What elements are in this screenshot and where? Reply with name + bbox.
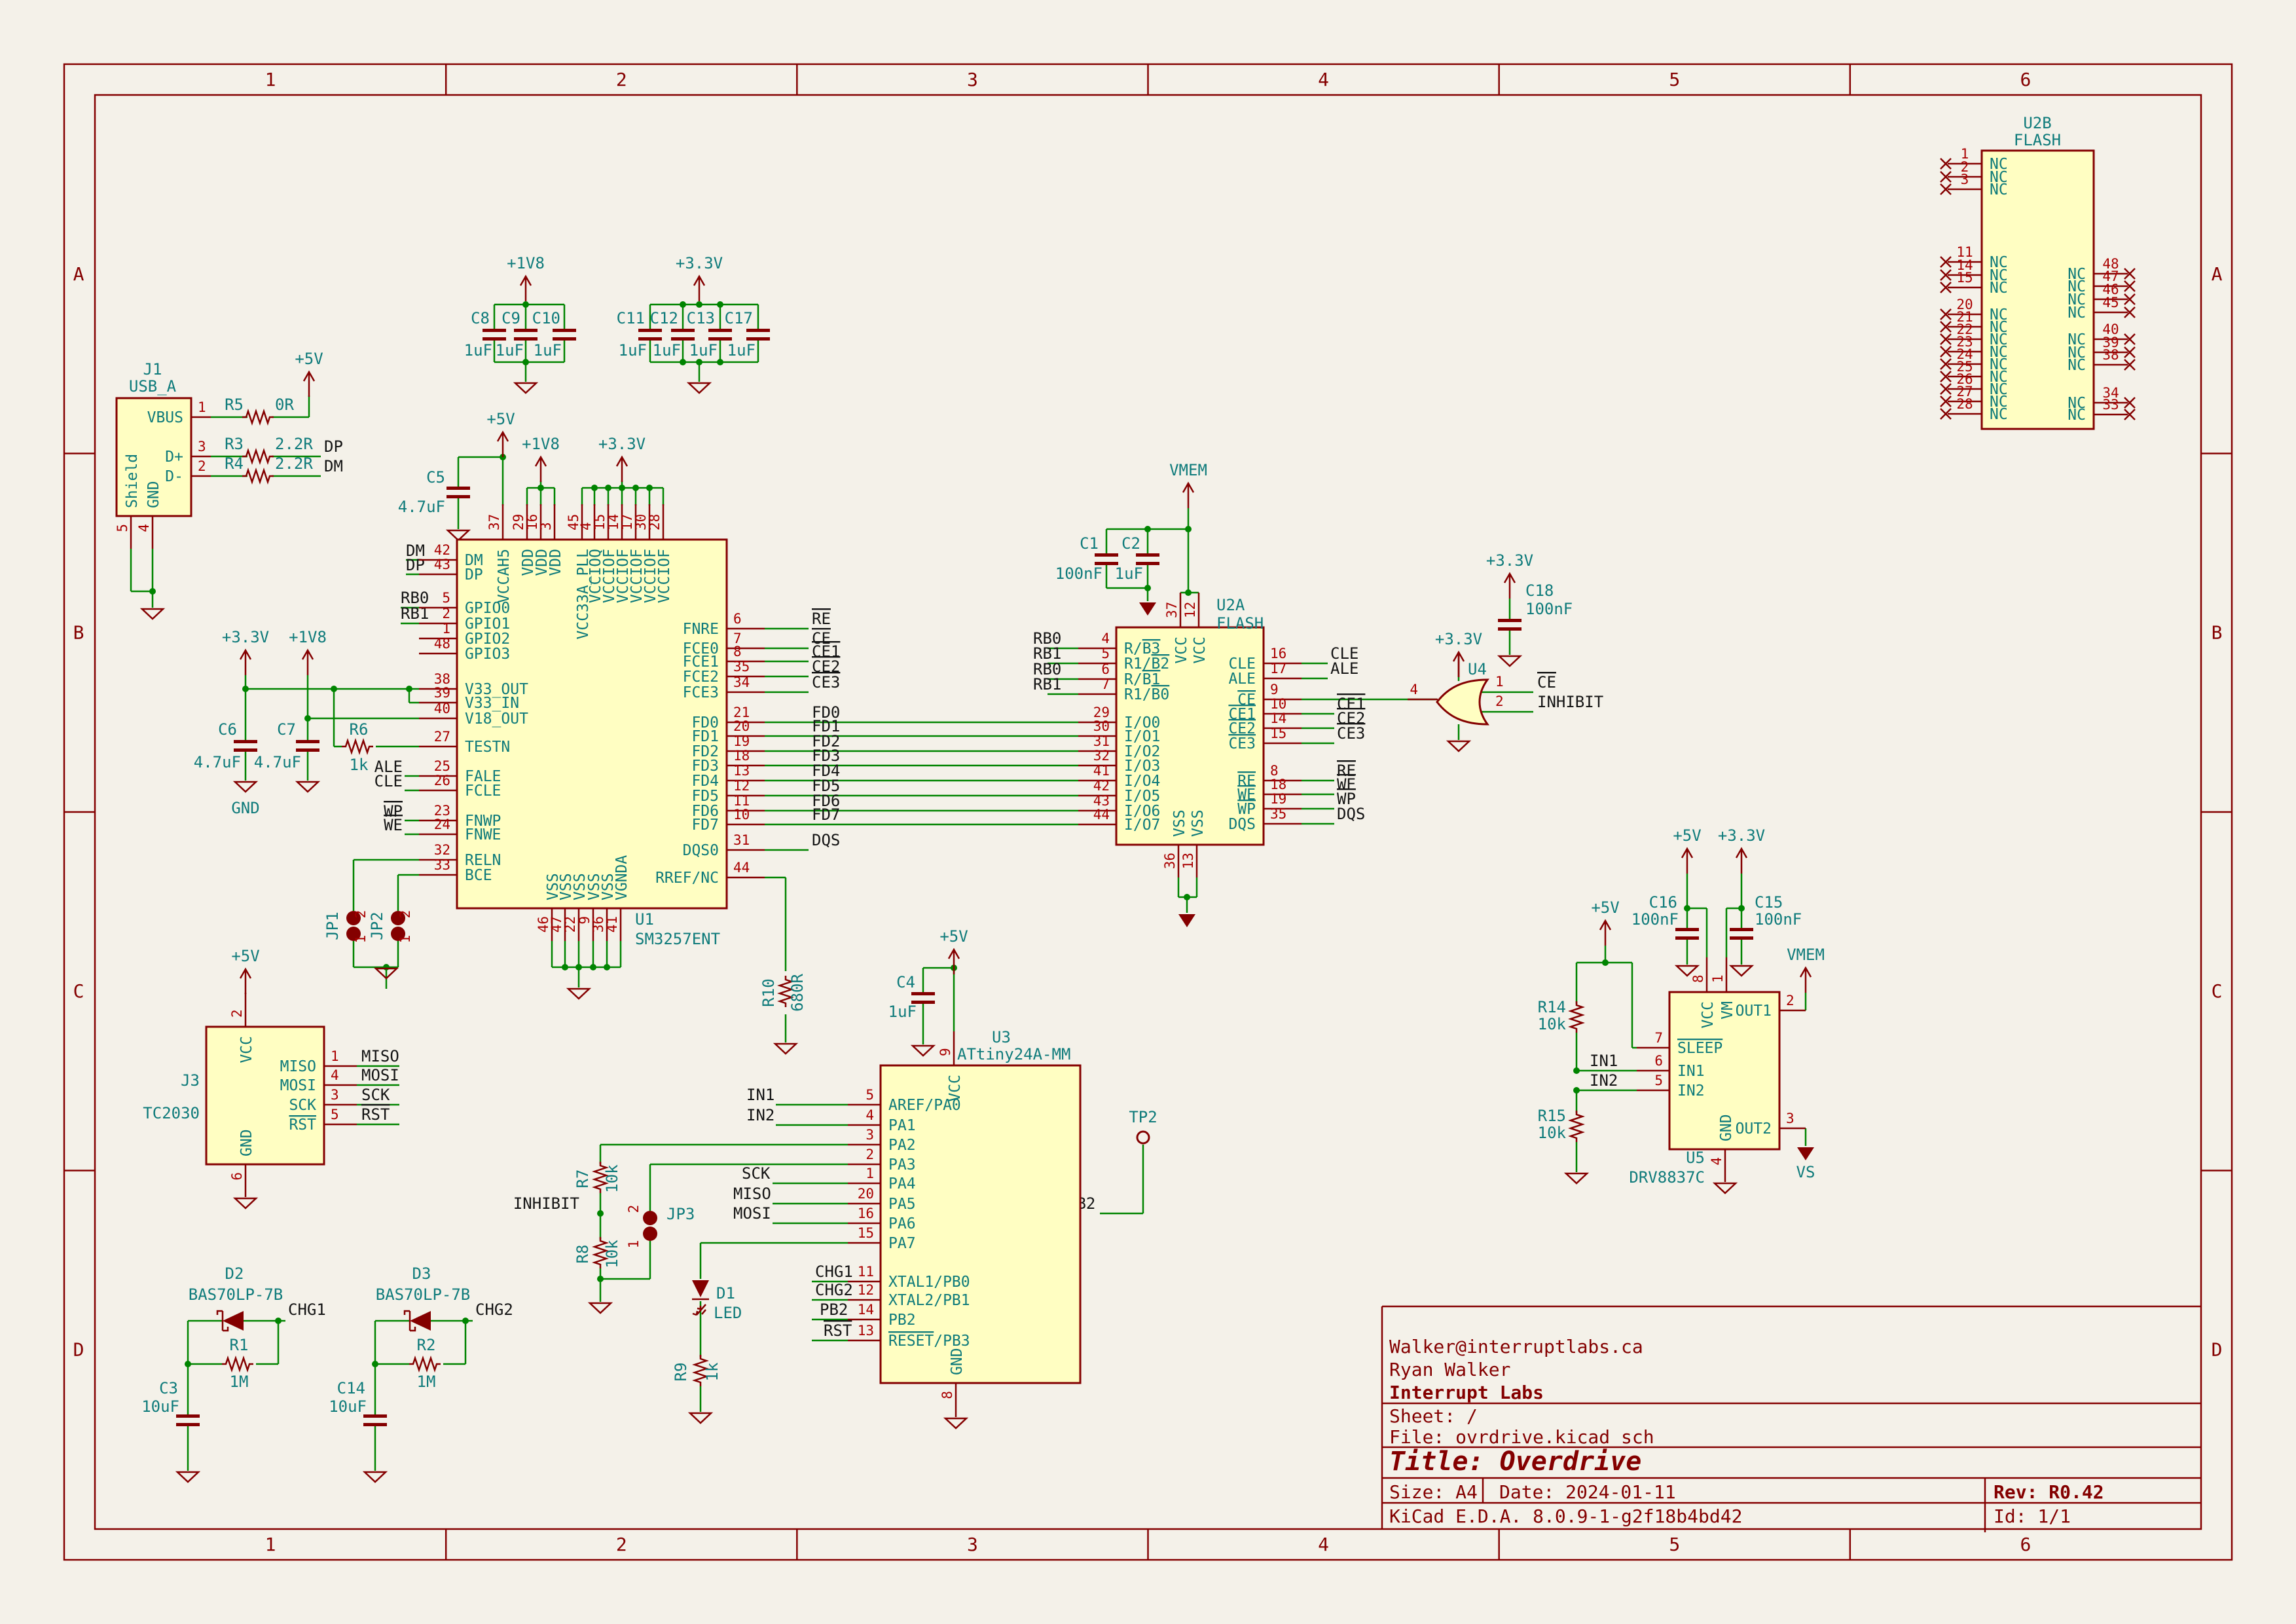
power-label-VMEM: VMEM — [1787, 946, 1825, 964]
component-ref: C8 — [471, 309, 490, 327]
net-label-FD7: FD7 — [812, 805, 840, 824]
component-ref: U1 — [635, 910, 654, 929]
component-value: 2.2R — [275, 435, 313, 453]
solder-jumper-symbol[interactable] — [643, 1211, 657, 1225]
pin-name: VDD — [547, 549, 564, 576]
pin-number: 28 — [1956, 396, 1973, 412]
pin-name: DP — [465, 566, 483, 583]
net-label-IN2: IN2 — [1590, 1071, 1618, 1090]
component-value: 1uF — [464, 341, 492, 360]
component-value: BAS70LP-7B — [376, 1285, 471, 1304]
pin-number: 6 — [1654, 1053, 1663, 1069]
pin-number: 38 — [2102, 347, 2119, 363]
pin-number: 31 — [733, 832, 750, 848]
pin-name: VM — [1719, 1001, 1736, 1020]
component-ref: R6 — [350, 720, 369, 739]
border-col-label: 1 — [265, 1534, 276, 1555]
pin-number: 27 — [434, 729, 450, 745]
pin-number: 31 — [1093, 733, 1110, 749]
pin-number: 10 — [1270, 696, 1286, 712]
power-label-+1V8: +1V8 — [522, 435, 560, 453]
net-label-CHG2: CHG2 — [815, 1281, 853, 1299]
pin-name: GND — [238, 1129, 255, 1156]
pin-number: 17 — [1270, 661, 1286, 676]
pin-name: PB2 — [888, 1312, 916, 1329]
pin-name: OUT1 — [1736, 1003, 1772, 1020]
pin-name: DQS0 — [683, 842, 719, 859]
pin-name: IN2 — [1677, 1082, 1705, 1099]
pin-name: VCC — [1192, 637, 1209, 664]
border-row-label: D — [2212, 1338, 2223, 1360]
pin-number: 3 — [1786, 1111, 1795, 1126]
pin-number: 32 — [1093, 748, 1110, 764]
pin-name: SCK — [289, 1097, 316, 1114]
net-label-SCK: SCK — [742, 1164, 771, 1183]
pin-number: 3 — [1961, 172, 1969, 187]
component-value: 10uF — [141, 1397, 179, 1416]
pin-number: 20 — [858, 1186, 874, 1202]
component-value: 4.7uF — [398, 498, 445, 516]
component-ref: JP3 — [666, 1205, 695, 1223]
kicad-schematic-sheet: 112233445566AABBCCDD Walker@interruptlab… — [0, 0, 2296, 1624]
pin-number: 3 — [866, 1127, 874, 1143]
led-symbol — [692, 1280, 709, 1297]
pin-number: 8 — [733, 644, 742, 659]
pin-number: 33 — [434, 857, 450, 873]
pin-number: 37 — [1164, 602, 1180, 618]
component-value: 1uF — [888, 1003, 917, 1021]
power-label-+5V: +5V — [486, 410, 515, 428]
net-label-INHIBIT: INHIBIT — [1537, 693, 1603, 711]
net-label-CE3: CE3 — [1337, 724, 1365, 743]
net-label-CHG2: CHG2 — [475, 1301, 513, 1319]
pin-number: 42 — [1093, 778, 1110, 794]
component-U5[interactable]: U5DRV8837C7SLEEP6IN15IN22OUT13OUT28VCC1V… — [1629, 957, 1806, 1187]
net-label-MISO: MISO — [361, 1047, 399, 1065]
power-arrow-icon — [240, 969, 251, 994]
component-ref: C13 — [687, 309, 715, 327]
component-ref: C5 — [426, 468, 445, 487]
power-label-+3.3V: +3.3V — [222, 628, 269, 646]
power-label-+3.3V: +3.3V — [1718, 826, 1765, 845]
pin-number: 6 — [229, 1172, 245, 1181]
pin-number: 1 — [353, 935, 369, 944]
pin-number: 41 — [604, 916, 620, 932]
component-value: 10k — [603, 1240, 621, 1268]
power-arrow-icon — [536, 457, 546, 482]
pin-number: 4 — [1101, 631, 1110, 646]
power-arrow-icon — [302, 650, 313, 675]
component-ref: C1 — [1080, 534, 1099, 553]
schematic-canvas: 112233445566AABBCCDD Walker@interruptlab… — [0, 0, 2296, 1624]
component-value: 4.7uF — [254, 753, 301, 771]
power-label-+3.3V: +3.3V — [1435, 630, 1482, 648]
pin-number: 5 — [331, 1107, 339, 1122]
pin-number: 33 — [2102, 397, 2119, 413]
pin-name: PA5 — [888, 1196, 916, 1213]
component-value: 1k — [703, 1362, 721, 1381]
component-ref: J3 — [181, 1071, 200, 1090]
component-value: 680R — [788, 974, 807, 1012]
pin-name: VCC — [1173, 637, 1190, 664]
title-block-size: Size: A4 — [1389, 1481, 1478, 1503]
component-value: USB_A — [129, 377, 177, 396]
title-block-tool: KiCad E.D.A. 8.0.9-1-g2f18b4bd42 — [1389, 1505, 1742, 1527]
pin-number: 3 — [538, 522, 554, 530]
power-arrow-icon — [304, 372, 314, 397]
title-block-author: Ryan Walker — [1389, 1359, 1510, 1380]
pin-number: 12 — [1182, 602, 1198, 618]
border-col-label: 5 — [1669, 69, 1680, 90]
pin-name: TESTN — [465, 739, 510, 756]
pin-number: 41 — [1093, 763, 1110, 779]
component-value: 1uF — [727, 341, 756, 360]
pin-number: 14 — [858, 1302, 874, 1318]
power-arrow-icon — [949, 950, 959, 974]
net-label-WE: WE — [384, 816, 403, 834]
power-label-+5V: +5V — [295, 350, 323, 368]
component-ref: R14 — [1538, 998, 1566, 1016]
pin-number: 45 — [2102, 295, 2119, 310]
component-U3[interactable]: U3ATtiny24A-MM5AREF/PA04PA13PA22PA31PA42… — [848, 1028, 1080, 1417]
power-label-+1V8: +1V8 — [289, 628, 327, 646]
component-ref: D3 — [412, 1264, 431, 1283]
net-label-ALE: ALE — [1330, 659, 1358, 678]
pin-name: R1/B2 — [1124, 655, 1169, 673]
net-label-DM: DM — [324, 457, 343, 475]
title-block-rev: Rev: R0.42 — [1994, 1481, 2104, 1503]
resistor-symbol — [222, 1358, 253, 1370]
power-arrow-icon — [1800, 968, 1811, 993]
power-arrow-icon — [1682, 849, 1692, 874]
capacitor-symbol — [1136, 553, 1159, 557]
net-label-DP: DP — [406, 556, 425, 574]
pin-number: 3 — [331, 1087, 339, 1103]
component-value: 1uF — [689, 341, 718, 360]
component-value: 1uF — [496, 341, 524, 360]
pin-number: 1 — [626, 1240, 642, 1249]
net-label-RST: RST — [361, 1105, 390, 1124]
pin-number: 6 — [733, 611, 742, 627]
pin-number: 28 — [647, 514, 663, 530]
pin-name: MISO — [280, 1058, 316, 1075]
pin-number: 16 — [858, 1206, 874, 1221]
pin-name: VSS — [1190, 809, 1207, 837]
pin-name: GND — [145, 481, 162, 508]
component-value: 10k — [1538, 1124, 1567, 1142]
pin-name: Shield — [124, 454, 141, 508]
pin-name: FNWE — [465, 826, 501, 843]
component-ref: R15 — [1538, 1107, 1566, 1125]
component-ref: C9 — [501, 309, 520, 327]
pin-name: PA4 — [888, 1175, 916, 1192]
pin-name: PA3 — [888, 1156, 916, 1173]
pin-number: 13 — [1180, 853, 1196, 869]
pin-number: 4 — [136, 524, 152, 532]
pin-number: 37 — [486, 514, 502, 530]
border-col-label: 3 — [967, 1534, 978, 1555]
net-label-RST: RST — [824, 1321, 852, 1340]
net-label-CHG1: CHG1 — [815, 1263, 853, 1281]
pin-name: VGNDA — [613, 855, 630, 900]
pin-number: 4 — [1709, 1157, 1724, 1166]
capacitor-symbol — [363, 1414, 387, 1418]
pin-number: 36 — [1162, 853, 1178, 869]
resistor-symbol — [242, 411, 274, 423]
pin-number: 1 — [442, 621, 450, 637]
net-label-CLE: CLE — [374, 772, 403, 790]
component-value: 2.2R — [275, 454, 313, 473]
pin-number: 40 — [434, 701, 450, 716]
pin-number: 18 — [1270, 777, 1286, 792]
power-label-+5V: +5V — [231, 947, 259, 965]
border-row-label: B — [2212, 621, 2223, 643]
border-row-label: A — [2212, 263, 2223, 285]
pin-number: 13 — [858, 1323, 874, 1338]
title-block-file: File: ovrdrive.kicad_sch — [1389, 1426, 1654, 1449]
net-label-IN1: IN1 — [1590, 1052, 1618, 1070]
power-label-+5V: +5V — [1673, 826, 1701, 845]
border-col-label: 2 — [616, 1534, 627, 1555]
resistor-symbol — [242, 451, 274, 462]
power-arrow-icon — [1600, 921, 1611, 946]
component-ref: R4 — [225, 454, 244, 473]
pin-number: 2 — [1786, 993, 1795, 1008]
net-label-RE: RE — [812, 610, 831, 628]
or-gate-symbol[interactable] — [1437, 680, 1487, 724]
component-ref: JP2 — [368, 912, 386, 940]
title-block-title: Title: Overdrive — [1389, 1447, 1641, 1477]
component-value: 0R — [275, 396, 294, 414]
pin-name: PA6 — [888, 1215, 916, 1232]
pin-number: 43 — [434, 557, 450, 572]
pin-number: 9 — [1270, 682, 1279, 697]
component-ref: JP1 — [323, 912, 342, 940]
pin-number: 12 — [858, 1282, 874, 1298]
component-ref: R3 — [225, 435, 244, 453]
pin-number: 15 — [1270, 726, 1286, 741]
component-ref: C12 — [650, 309, 678, 327]
pin-name: VCCAH5 — [496, 549, 513, 603]
border-col-label: 3 — [967, 69, 978, 90]
component-J3[interactable]: J3TC20301MISO4MOSI3SCK5RST2VCC6GND — [143, 993, 357, 1197]
capacitor-symbol — [176, 1414, 200, 1418]
net-label-MOSI: MOSI — [361, 1066, 399, 1084]
pin-number: 11 — [858, 1264, 874, 1280]
power-label-+3.3V: +3.3V — [1486, 551, 1533, 570]
power-arrow-icon — [240, 650, 251, 675]
component-ref: R7 — [574, 1170, 592, 1189]
pin-name: IN1 — [1677, 1063, 1705, 1080]
resistor-symbol — [1571, 1111, 1582, 1142]
pin-number: 2 — [442, 606, 450, 621]
power-label-+3.3V: +3.3V — [676, 254, 723, 272]
pin-number: 35 — [733, 659, 750, 674]
pin-name: CE3 — [1228, 735, 1256, 752]
pin-number: 2 — [229, 1009, 245, 1018]
component-J1[interactable]: J1USB_A1VBUS3D+2D-5Shield4GND — [115, 360, 211, 549]
pin-name: VSS — [1171, 809, 1188, 837]
pin-number: 13 — [733, 763, 750, 779]
power-arrow-icon — [498, 432, 508, 457]
capacitor-symbol — [234, 740, 257, 743]
pin-number: 7 — [1654, 1030, 1663, 1046]
pin-number: 2 — [353, 910, 369, 919]
net-label-CE: CE — [1537, 673, 1556, 692]
pin-number: 39 — [434, 685, 450, 701]
pin-number: 5 — [1654, 1073, 1663, 1088]
capacitor-symbol — [446, 487, 470, 490]
pin-name: V33_IN — [465, 695, 519, 712]
pin-number: 35 — [1270, 806, 1286, 822]
pin-number: 5 — [866, 1087, 874, 1103]
pin-name: RESET/PB3 — [888, 1333, 970, 1350]
component-ref: C14 — [337, 1379, 365, 1397]
resistor-symbol — [242, 470, 274, 482]
power-label-VMEM: VMEM — [1169, 461, 1207, 479]
pin-number: 5 — [115, 524, 130, 532]
component-value: 10uF — [329, 1397, 367, 1416]
component-ref: TP2 — [1129, 1108, 1157, 1126]
border-row-label: D — [73, 1338, 84, 1360]
net-label-DQS: DQS — [1337, 805, 1365, 823]
component-ref: C3 — [159, 1379, 178, 1397]
pin-number: 26 — [434, 773, 450, 788]
power-label-VS: VS — [1796, 1163, 1815, 1181]
component-ref: C16 — [1649, 893, 1677, 912]
pin-name: PA2 — [888, 1137, 916, 1154]
component-ref: C6 — [218, 720, 237, 739]
border-col-label: 2 — [616, 69, 627, 90]
pin-number: 5 — [1101, 646, 1110, 661]
power-label-+5V: +5V — [1591, 898, 1619, 917]
pin-name: FCLE — [465, 783, 501, 800]
border-row-label: C — [73, 980, 84, 1002]
capacitor-symbol — [1095, 553, 1118, 557]
net-label-IN2: IN2 — [746, 1106, 774, 1124]
component-ref: U2A — [1216, 596, 1245, 614]
gnd-arrow-icon — [1139, 602, 1156, 616]
border-row-label: C — [2212, 980, 2223, 1002]
resistor-symbol — [342, 741, 373, 752]
pin-number: 34 — [733, 674, 750, 690]
component-U2A[interactable]: U2AFLASH4R/B35R1/B26R/B17R1/B029I/O030I/… — [1078, 593, 1302, 877]
pin-number: 1 — [866, 1166, 874, 1181]
pin-name: VCCIOF — [656, 549, 673, 603]
pin-number: 19 — [733, 733, 750, 749]
pin-name: FNRE — [683, 621, 719, 638]
component-U2B[interactable]: U2BFLASH1NC2NC3NC11NC14NC15NC20NC21NC22N… — [1941, 114, 2135, 429]
testpoint-symbol[interactable] — [1137, 1132, 1149, 1143]
border-col-label: 1 — [265, 69, 276, 90]
title-block-company: Interrupt Labs — [1389, 1382, 1544, 1403]
pin-name: PA7 — [888, 1235, 916, 1252]
title-block-id: Id: 1/1 — [1994, 1505, 2071, 1527]
component-ref: R2 — [417, 1336, 436, 1354]
power-arrow-icon — [694, 276, 704, 301]
pin-number: 4 — [866, 1107, 874, 1123]
pin-number: 12 — [733, 778, 750, 794]
pin-number: 2 — [866, 1147, 874, 1162]
pin-name: MOSI — [280, 1077, 316, 1094]
pin-name: D+ — [165, 449, 183, 466]
title-block-sheet: Sheet: / — [1389, 1405, 1478, 1427]
pin-name: XTAL1/PB0 — [888, 1274, 970, 1291]
component-value: 1uF — [653, 341, 681, 360]
pin-name: RREF/NC — [655, 870, 719, 887]
capacitor-symbol — [911, 992, 935, 995]
pin-name: FCE3 — [683, 684, 719, 701]
border-col-label: 5 — [1669, 1534, 1680, 1555]
pin-name: R1/B0 — [1124, 686, 1169, 703]
pin-number: 8 — [1690, 974, 1706, 983]
pin-name: GPIO3 — [465, 646, 510, 663]
net-label-RB1: RB1 — [1033, 675, 1061, 693]
component-ref: C15 — [1755, 893, 1783, 912]
pin-number: 6 — [1101, 661, 1110, 677]
pin-name: PA1 — [888, 1117, 916, 1134]
component-ref: J1 — [143, 360, 162, 378]
net-label-INHIBIT: INHIBIT — [513, 1194, 579, 1213]
component-value: 10k — [603, 1164, 621, 1193]
component-ref: D2 — [225, 1264, 244, 1283]
component-U1[interactable]: U1SM3257ENT42DM43DP5GPIO02GPIO11GPIO248G… — [419, 504, 765, 948]
pin-number: 1 — [198, 399, 206, 415]
component-ref: U2B — [2023, 114, 2051, 132]
capacitor-symbol — [553, 329, 576, 332]
net-label-DP: DP — [324, 437, 343, 456]
component-ref: R8 — [574, 1245, 592, 1264]
resistor-symbol — [409, 1358, 441, 1370]
net-label-IN1: IN1 — [746, 1086, 774, 1104]
component-ref: C7 — [277, 720, 296, 739]
border-row-label: B — [73, 621, 84, 643]
pin-number: 15 — [1956, 270, 1973, 286]
pin-name: NC — [1990, 181, 2008, 198]
pin-name: DQS — [1228, 816, 1256, 833]
component-value: SM3257ENT — [635, 930, 720, 948]
component-value: 1k — [350, 756, 369, 774]
title-block-email: Walker@interruptlabs.ca — [1389, 1336, 1643, 1357]
pin-number: 4 — [1410, 682, 1418, 697]
power-label-+1V8: +1V8 — [507, 254, 545, 272]
pin-name: FCE2 — [683, 669, 719, 686]
pin-number: 1 — [331, 1048, 339, 1064]
component-value: 100nF — [1631, 910, 1679, 929]
capacitor-symbol — [708, 329, 732, 332]
pin-number: 10 — [733, 807, 750, 822]
title-block-date: Date: 2024-01-11 — [1499, 1481, 1676, 1503]
component-value: 10k — [1538, 1015, 1567, 1033]
component-value: FLASH — [1216, 614, 1264, 633]
capacitor-symbol — [638, 329, 662, 332]
component-value: 4.7uF — [194, 753, 241, 771]
pin-name: NC — [2068, 357, 2086, 374]
pin-number: 19 — [1270, 791, 1286, 807]
pin-name: NC — [2068, 304, 2086, 322]
capacitor-symbol — [1675, 928, 1699, 931]
pin-name: ALE — [1228, 671, 1256, 688]
pin-number: 32 — [434, 842, 450, 858]
capacitor-symbol — [671, 329, 695, 332]
component-value: 1M — [417, 1373, 436, 1391]
component-value: FLASH — [2014, 131, 2061, 149]
gnd-arrow-icon — [1178, 914, 1195, 927]
capacitor-symbol — [746, 329, 770, 332]
component-value: 1uF — [534, 341, 562, 360]
pin-number: 48 — [434, 636, 450, 652]
pin-number: 30 — [1093, 718, 1110, 734]
